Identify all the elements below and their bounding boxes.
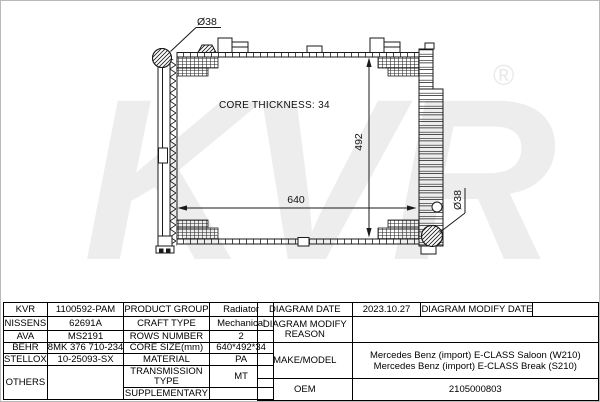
table-row: KVR 1100592-PAM PRODUCT GROUP Radiator (4, 303, 274, 317)
table-row: DIAGRAM DATE 2023.10.27 DIAGRAM MODIFY D… (258, 303, 599, 317)
attribute-label-cell: ROWS NUMBER (124, 331, 209, 343)
kvr-watermark: KVR ® (83, 51, 556, 301)
attribute-label-cell: SUPPLEMENTARY (124, 388, 209, 400)
diagram-modify-date-label-cell: DIAGRAM MODIFY DATE (421, 303, 533, 317)
bottom-port-diameter-label: Ø38 (452, 190, 464, 210)
table-row: STELLOX 10-25093-SX MATERIAL PA (4, 354, 274, 366)
table-row: OTHERS TRANSMISSION TYPE MT (4, 366, 274, 388)
diagram-date-label-cell: DIAGRAM DATE (258, 303, 353, 317)
make-model-value-cell: Mercedes Benz (import) E-CLASS Saloon (W… (352, 343, 598, 379)
top-port-diameter-label: Ø38 (197, 16, 217, 28)
diagram-modify-reason-label-cell: DIAGRAM MODIFY REASON (258, 317, 353, 343)
brand-number-cell: 62691A (47, 317, 124, 331)
attribute-label-cell: CORE SIZE(mm) (124, 343, 209, 354)
left-tank (156, 58, 177, 253)
brand-cell: OTHERS (4, 366, 48, 400)
left-tank-foot (158, 236, 172, 246)
right-tank-foot (421, 246, 436, 254)
right-tank-boss (432, 202, 442, 212)
left-tank-slot (159, 148, 168, 163)
brand-cell: AVA (4, 331, 48, 343)
top-center-tab (307, 46, 322, 53)
dim-width-label: 640 (287, 194, 305, 206)
core-thickness-label: CORE THICKNESS: 34 (219, 100, 330, 111)
table-row: BEHR 8MK 376 710-234 CORE SIZE(mm) 640*4… (4, 343, 274, 354)
bottom-center-notch (298, 238, 309, 247)
attribute-label-cell: PRODUCT GROUP (124, 303, 209, 317)
brand-number-cell: MS2191 (47, 331, 124, 343)
table-row: NISSENS 62691A CRAFT TYPE Mechanical (4, 317, 274, 331)
dim-height-label: 492 (353, 133, 365, 151)
registered-mark-watermark: ® (493, 60, 514, 92)
attribute-label-cell: CRAFT TYPE (124, 317, 209, 331)
diagram-modify-date-value-cell (533, 303, 599, 317)
diagram-info-table: DIAGRAM DATE 2023.10.27 DIAGRAM MODIFY D… (257, 302, 599, 401)
core-top-bar (177, 53, 419, 58)
cross-reference-table: KVR 1100592-PAM PRODUCT GROUP Radiator N… (3, 302, 274, 400)
attribute-label-cell: MATERIAL (124, 354, 209, 366)
brand-cell: NISSENS (4, 317, 48, 331)
oem-value-cell: 2105000803 (352, 379, 598, 401)
radiator-spec-sheet: KVR ® (0, 0, 600, 402)
attribute-label-cell: TRANSMISSION TYPE (124, 366, 209, 388)
diagram-date-value-cell: 2023.10.27 (352, 303, 421, 317)
diagram-modify-reason-value-cell (352, 317, 598, 343)
make-model-line-2: Mercedes Benz (import) E-CLASS Break (S2… (353, 361, 598, 372)
brand-cell: KVR (4, 303, 48, 317)
top-port-callout: Ø38 (171, 16, 222, 52)
brand-number-cell (47, 366, 124, 400)
radiator-diagram: KVR ® (1, 1, 600, 301)
make-model-line-1: Mercedes Benz (import) E-CLASS Saloon (W… (353, 350, 598, 361)
top-inlet-port (153, 49, 172, 68)
brand-cell: BEHR (4, 343, 48, 354)
bottom-outlet-port (422, 226, 443, 247)
table-row: AVA MS2191 ROWS NUMBER 2 (4, 331, 274, 343)
brand-cell: STELLOX (4, 354, 48, 366)
brand-number-cell: 10-25093-SX (47, 354, 124, 366)
table-row: DIAGRAM MODIFY REASON (258, 317, 599, 343)
oem-label-cell: OEM (258, 379, 353, 401)
brand-number-cell: 1100592-PAM (47, 303, 124, 317)
table-row: OEM 2105000803 (258, 379, 599, 401)
brand-number-cell: 8MK 376 710-234 (47, 343, 124, 354)
kvr-watermark-text: KVR (83, 51, 556, 301)
make-model-label-cell: MAKE/MODEL (258, 343, 353, 379)
table-row: MAKE/MODEL Mercedes Benz (import) E-CLAS… (258, 343, 599, 379)
